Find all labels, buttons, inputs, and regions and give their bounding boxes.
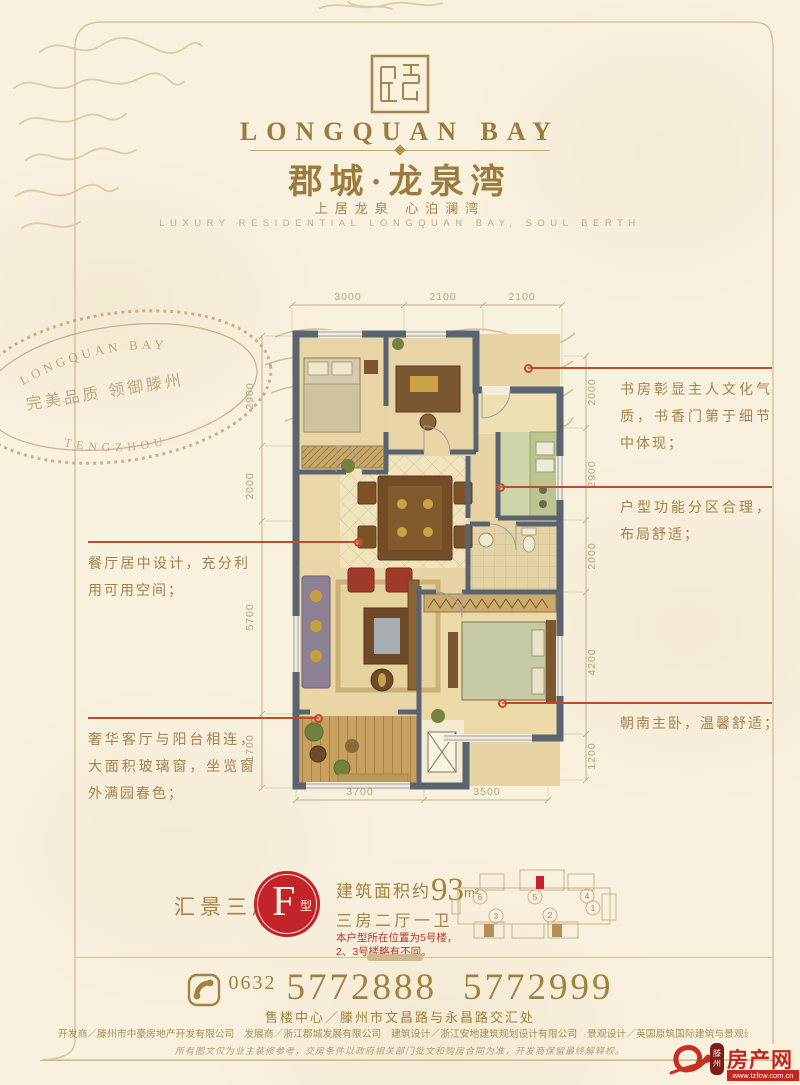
dim-left-2: 2000 bbox=[244, 472, 256, 499]
sales-address: 售楼中心／滕州市文昌路与永昌路交汇处 bbox=[0, 1007, 800, 1026]
stamp-middle-text: 完美品质 领御滕州 bbox=[25, 371, 185, 414]
callout-line-living bbox=[88, 717, 319, 719]
key-plan-label-5: 5 bbox=[533, 892, 538, 902]
annotation-zoning: 户型功能分区合理，布局舒适； bbox=[620, 494, 772, 548]
unit-rooms: 三房二厅一卫 bbox=[336, 907, 453, 931]
contact-row: 063257728885772999 bbox=[0, 966, 800, 1009]
site-logo-url: www.tzfcw.com.cn bbox=[727, 1070, 799, 1081]
key-plan-label-4: 4 bbox=[585, 891, 590, 901]
site-logo-prefix-capsule: 滕州 bbox=[710, 1043, 724, 1075]
callout-dot-zoning bbox=[496, 483, 505, 492]
key-plan-label-6: 6 bbox=[478, 892, 483, 902]
dim-right-2: 2900 bbox=[586, 460, 598, 487]
stamp-arc-bottom: TENGZHOU bbox=[63, 433, 169, 454]
callout-dot-study bbox=[524, 364, 533, 373]
section-divider bbox=[76, 957, 773, 958]
key-plan-label-1: 1 bbox=[591, 903, 596, 913]
callout-line-dining bbox=[88, 541, 359, 543]
brand-slogan-cn: 上居龙泉 心泊澜湾 bbox=[0, 198, 800, 217]
dim-bottom-2: 3500 bbox=[473, 786, 500, 798]
unit-area-prefix: 建筑面积约 bbox=[336, 882, 431, 901]
site-logo: 滕州 房产网 www.tzfcw.com.cn bbox=[668, 1038, 798, 1084]
brand-title-cn: 郡城·龙泉湾 bbox=[0, 154, 800, 203]
dim-top-3: 2100 bbox=[508, 291, 535, 303]
dim-top-2: 2100 bbox=[429, 291, 456, 303]
footer-rule bbox=[40, 1060, 773, 1061]
annotation-dining: 餐厅居中设计，充分利用可用空间； bbox=[88, 550, 250, 604]
unit-type-suffix: 型 bbox=[300, 897, 312, 914]
brand-slogan-en: LUXURY RESIDENTIAL LONGQUAN BAY, SOUL BE… bbox=[0, 218, 800, 229]
callout-line-master bbox=[502, 702, 772, 704]
annotation-living: 奢华客厅与阳台相连，大面积玻璃窗，坐览窗外满园春色； bbox=[88, 726, 256, 807]
annotation-study: 书房彰显主人文化气质，书香门第于细节中体现； bbox=[620, 376, 772, 457]
dim-left-3: 5700 bbox=[244, 603, 256, 630]
site-logo-e-icon bbox=[668, 1040, 712, 1082]
dim-right-4: 4200 bbox=[586, 648, 598, 675]
footer-credits: 开发商／滕州市中豪房地产开发有限公司 发展商／浙江郡城发展有限公司 建筑设计／浙… bbox=[58, 1026, 748, 1040]
poster-page: LONGQUAN BAY TENGZHOU 完美品质 领御滕州 LONGQUAN… bbox=[0, 0, 800, 1085]
svg-text:TENGZHOU: TENGZHOU bbox=[63, 433, 169, 454]
callout-dot-dining bbox=[354, 538, 363, 547]
dim-right-1: 2000 bbox=[586, 378, 598, 405]
dim-bottom-1: 3700 bbox=[346, 786, 373, 798]
phone-area-code: 0632 bbox=[229, 972, 277, 994]
phone-icon bbox=[187, 973, 221, 1007]
callout-dot-living bbox=[314, 714, 323, 723]
brand-title-en: LONGQUAN BAY bbox=[0, 117, 800, 147]
key-plan: 6 5 4 1 3 2 bbox=[450, 860, 620, 954]
unit-note-line1: 本户型所在位置为5号楼， bbox=[336, 931, 457, 945]
annotation-master: 朝南主卧，温馨舒适； bbox=[620, 710, 790, 737]
key-plan-label-2: 2 bbox=[548, 910, 553, 920]
unit-type-badge: F 型 bbox=[254, 871, 320, 937]
key-plan-highlight-unit bbox=[536, 876, 544, 889]
dim-right-5: 1200 bbox=[586, 742, 598, 769]
callout-line-study bbox=[528, 367, 772, 369]
key-plan-label-3: 3 bbox=[494, 911, 499, 921]
callout-dot-master bbox=[498, 699, 507, 708]
phone-number-1: 5772888 bbox=[287, 967, 438, 1008]
unit-type-letter: F bbox=[272, 878, 295, 926]
dim-left-1: 2900 bbox=[244, 382, 256, 409]
dim-right-3: 2000 bbox=[586, 542, 598, 569]
divider-ornament-icon bbox=[367, 954, 423, 961]
dim-top-1: 3000 bbox=[334, 291, 361, 303]
phone-number-2: 5772999 bbox=[463, 967, 614, 1008]
brand-seal-icon bbox=[369, 53, 431, 115]
callout-line-zoning bbox=[500, 486, 772, 488]
